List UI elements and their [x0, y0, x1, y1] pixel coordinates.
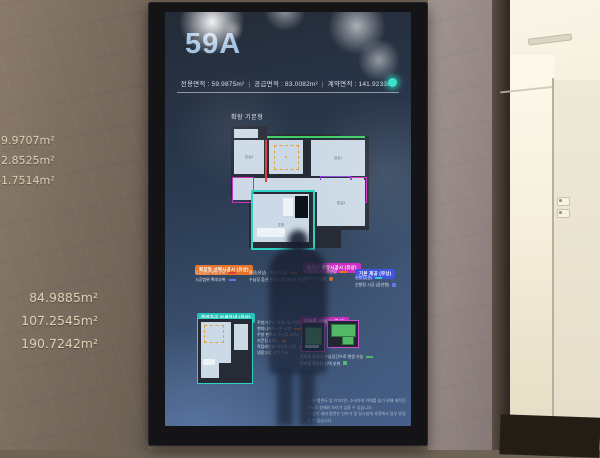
area-exclusive: 전용면적 : 59.9875m²	[181, 81, 245, 88]
disclaimer-line: ※ 본 평면도 및 이미지는 소비자의 이해를 돕기 위해 제작된 것으로 실제…	[307, 398, 409, 411]
red-line-marker	[229, 272, 236, 274]
wall-area-line: 84.9885m²	[0, 286, 98, 309]
marble-texture	[428, 0, 492, 450]
marble-texture	[0, 0, 152, 450]
blue-line-marker	[229, 279, 236, 281]
room-label: 침실2	[234, 155, 264, 160]
alpha-diagram-2	[327, 320, 359, 348]
room-living	[269, 140, 303, 174]
unit-type-title: 59A	[185, 28, 241, 61]
ceiling-light-glare	[327, 12, 387, 56]
green-line-marker	[366, 356, 373, 358]
room-label: 침실3	[317, 201, 365, 206]
mini-fixture	[203, 359, 215, 365]
red-accent-line	[265, 140, 267, 182]
door	[554, 80, 600, 450]
legend-group-basic: 기본 제공 (무상) 신발장(중) 신발장 시공 (옵션형)	[355, 262, 409, 280]
teal-indicator-reflection	[388, 78, 397, 87]
separator: |	[322, 81, 324, 88]
area-summary-line: 전용면적 : 59.9875m²|공급면적 : 83.0082m²|계약면적 :…	[165, 78, 411, 88]
zone-dot	[285, 156, 287, 158]
room-label: 침실1	[311, 156, 365, 161]
disclaimer-text: ※ 본 평면도 및 이미지는 소비자의 이해를 돕기 위해 제작된 것으로 실제…	[307, 398, 409, 424]
mini-room	[234, 324, 248, 350]
wall-area-group-bottom: 84.9885m² 107.2545m² 190.7242m²	[0, 286, 98, 355]
marble-pillar-right	[428, 0, 492, 450]
mini-wall-notch	[219, 363, 231, 378]
hallway-lit-panel	[510, 55, 554, 425]
kiosk-frame: 59A 전용면적 : 59.9875m²|공급면적 : 83.0082m²|계약…	[148, 2, 428, 446]
orange-dot-marker	[329, 277, 333, 281]
blue-box-marker	[392, 283, 396, 287]
teal-line-marker	[375, 277, 382, 279]
wall-below-kiosk	[148, 446, 428, 450]
legend-item: 시공범위 확대부위	[195, 277, 236, 284]
green-box-marker	[343, 361, 347, 365]
wall-switch	[557, 197, 570, 206]
kitchen-mini-plan	[197, 318, 253, 384]
area-supply: 공급면적 : 83.0082m²	[254, 81, 318, 88]
disclaimer-line: ※ 상기 세대 평면은 인허가 및 실시설계 과정에서 일부 변경될 수 있습니…	[307, 411, 409, 424]
legend-item: 신발장 시공 (옵션형)	[355, 282, 396, 289]
wall-switch	[557, 209, 570, 218]
wall-area-line: 82.8525m²	[0, 151, 55, 171]
wall-area-line: 59.9707m²	[0, 131, 55, 151]
room-bedroom3: 침실3	[317, 180, 365, 226]
orange-line-marker	[340, 271, 347, 273]
wall-area-line: 107.2545m²	[0, 309, 98, 332]
green-accent-line	[267, 136, 365, 138]
wall-corner-edge	[492, 0, 510, 450]
floor-dark	[499, 414, 600, 457]
separator: |	[248, 81, 250, 88]
kiosk-touchscreen[interactable]: 59A 전용면적 : 59.9875m²|공급면적 : 83.0082m²|계약…	[165, 12, 411, 426]
kitchen-inset: 주방가구 상세안내 (유상) 주방가구(ㄷ자형) 및 아일랜드장 엔지니어드스톤…	[197, 306, 255, 324]
photographer-reflection-leg	[299, 368, 315, 426]
marble-wall-left: 59.9707m² 82.8525m² 41.7514m² 84.9885m² …	[0, 0, 152, 450]
area-contract: 계약면적 : 141.9233m²	[328, 81, 395, 88]
ceiling-light-glare	[263, 12, 307, 32]
dashed-zone	[204, 325, 224, 343]
legend-item: 신발장(중)	[355, 275, 382, 282]
legend-item: 무상옵션 확장부위	[195, 270, 236, 277]
alpha-zone	[342, 336, 354, 345]
divider-line	[177, 92, 399, 93]
wall-area-line: 41.7514m²	[0, 171, 55, 191]
room-bedroom2: 침실2	[234, 140, 264, 174]
wall-area-group-top: 59.9707m² 82.8525m² 41.7514m²	[0, 131, 55, 191]
room-closet	[234, 129, 258, 138]
photographer-reflection-leg	[277, 368, 293, 426]
wall-area-line: 190.7242m²	[0, 332, 98, 355]
ceiling-light-glare	[357, 38, 401, 82]
room-bedroom1: 침실1	[311, 140, 365, 176]
photographer-reflection-body	[269, 248, 327, 374]
